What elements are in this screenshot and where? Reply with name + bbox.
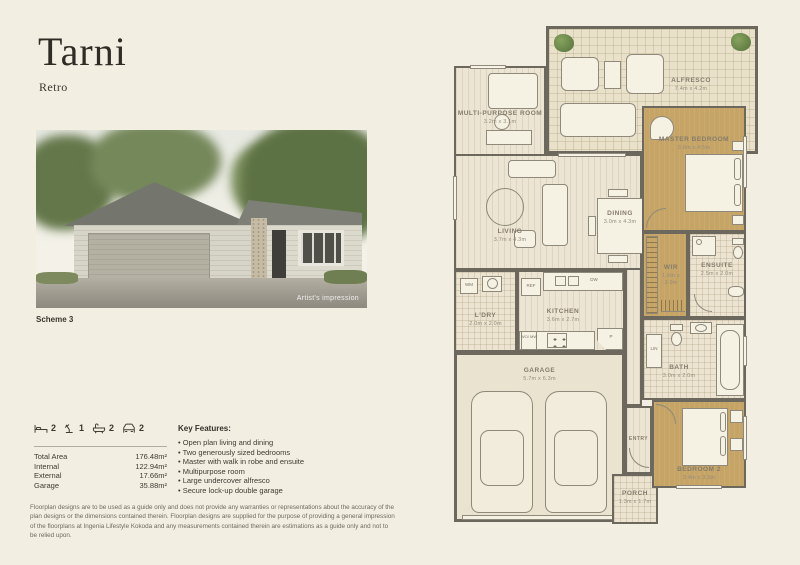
room-label: L'DRY 2.0m x 2.0m [456,312,515,328]
room-name-text: ENTRY [629,436,648,442]
armchair-shape [561,57,599,91]
room-dims-text: 3.0m x 2.0m [646,373,712,380]
sofa-shape [542,184,568,246]
oven-microwave-label: WO/ MW [520,335,538,339]
spec-divider [34,446,167,447]
car-shape [471,391,533,513]
room-label: KITCHEN 3.6m x 2.7m [519,308,607,324]
room-label: WIR 1.6m x 3.0m [656,264,686,287]
room-name-text: BATH [669,364,689,371]
room-name-text: GARAGE [524,367,556,374]
spec-label: Internal [34,462,59,472]
desk-shape [486,130,532,145]
toilet-bowl-shape [671,332,682,346]
sliding-door [558,153,626,157]
room-label: ALFRESCO 7.4m x 4.2m [631,77,751,93]
window [470,65,506,69]
room-laundry: WM L'DRY 2.0m x 2.0m [454,270,517,352]
room-name-text: ENSUITE [701,262,733,269]
car-shape [545,391,607,513]
room-dims-text: 3.0m x 4.3m [602,219,638,226]
floorplan: ALFRESCO 7.4m x 4.2m MULTI-PURPOSE ROOM … [430,18,776,544]
room-label: BEDROOM 2 3.4m x 3.3m [654,466,744,482]
room-kitchen: REF DW KITCHEN 3.6m x 2.7m WO/ MW P [517,270,625,352]
daybed-shape [488,73,538,109]
room-label: ENSUITE 2.5m x 2.0m [690,262,744,278]
tub-basin-shape [487,278,498,289]
room-bedroom2: BEDROOM 2 3.4m x 3.3m [652,400,746,488]
hallway [625,268,642,406]
shower-head-shape [696,239,702,245]
spec-label: External [34,471,62,481]
room-bath: LIN BATH 3.0m x 2.0m [642,318,746,400]
bed-icon [34,423,48,434]
dining-chair-shape [608,255,628,263]
side-table-shape [730,438,743,451]
toilet-bowl-shape [733,246,743,259]
front-window [298,230,344,266]
study-lamp-icon [64,422,76,434]
room-living-dining: LIVING 3.7m x 4.3m DINING 3.0m x 4.3m [454,154,642,270]
basin-shape [695,324,707,332]
grass-left [36,272,78,284]
garage-count: 2 [122,422,144,434]
page-title: Tarni [38,28,127,75]
study-count-value: 1 [79,423,84,433]
bedrooms-count: 2 [34,423,56,434]
room-entry: ENTRY [625,406,652,474]
bathrooms-count: 2 [92,422,114,434]
room-label: ENTRY [627,436,650,442]
dining-chair-shape [608,189,628,197]
room-dims-text: 3.6m x 4.5m [644,145,744,152]
room-name-text: MULTI-PURPOSE ROOM [458,110,542,117]
toilet-tank-shape [670,324,683,331]
room-dims-text: 5.7m x 6.3m [457,376,622,383]
door-arc [646,208,666,228]
room-name-text: MASTER BEDROOM [659,136,729,143]
cooktop-shape [547,333,567,348]
room-label: DINING 3.0m x 4.3m [602,210,638,226]
dishwasher-label: DW [585,278,603,283]
car-roof-shape [554,430,598,486]
spec-row-garage: Garage35.88m² [34,481,167,491]
garage-count-value: 2 [139,423,144,433]
window [743,416,747,460]
room-garage: GARAGE 5.7m x 6.3m [454,352,625,522]
door-arc [694,294,712,312]
bathrooms-count-value: 2 [109,423,114,433]
room-dims-text: 3.2m x 3.1m [456,119,544,126]
coffee-table-shape [604,61,621,89]
linen-label: LIN [646,347,662,352]
grass-right [324,270,367,284]
room-label: MASTER BEDROOM 3.6m x 4.5m [644,136,744,152]
room-dims-text: 3.4m x 3.3m [654,475,744,482]
window [743,136,747,188]
spec-label: Garage [34,481,59,491]
washing-machine-label: WM [460,283,478,288]
feature-item: Secure lock-up double garage [178,486,378,496]
room-label: BATH 3.0m x 2.0m [646,364,712,380]
room-dims-text: 1.6m x 3.0m [656,273,686,287]
dining-table-shape [597,198,643,254]
dining-chair-shape [588,216,596,236]
room-label: GARAGE 5.7m x 6.3m [457,367,622,383]
room-name-text: PORCH [622,490,648,497]
door-arc [629,448,649,468]
feature-item: Open plan living and dining [178,438,378,448]
side-table-shape [732,215,744,225]
room-dims-text: 2.5m x 2.0m [690,271,744,278]
page-subtitle: Retro [39,80,68,95]
pillow-shape [720,412,726,432]
pillow-shape [720,436,726,456]
spec-icon-row: 2 1 2 2 [34,422,144,434]
room-label: PORCH 1.3m x 1.7m [614,490,656,506]
room-master-bedroom: MASTER BEDROOM 3.6m x 4.5m [642,106,746,232]
study-count: 1 [64,422,84,434]
room-multipurpose: MULTI-PURPOSE ROOM 3.2m x 3.1m [454,66,546,156]
car-icon [122,422,136,434]
spec-row-external: External17.66m² [34,471,167,481]
driveway [36,278,367,308]
garage-door-panel [88,233,210,280]
side-table-shape [730,410,743,423]
disclaimer-text: Floorplan designs are to be used as a gu… [30,503,396,541]
stone-pillar [251,218,267,280]
spec-row-internal: Internal122.94m² [34,462,167,472]
key-features: Key Features: Open plan living and dinin… [178,424,378,496]
spec-value: 176.48m² [135,452,167,462]
room-label: MULTI-PURPOSE ROOM 3.2m x 3.1m [456,110,544,126]
feature-item: Large undercover alfresco [178,476,378,486]
room-name-text: DINING [607,210,633,217]
spec-value: 17.66m² [139,471,167,481]
garage-door-line [462,515,617,520]
room-dims-text: 3.6m x 2.7m [519,317,607,324]
window [743,336,747,366]
window [453,176,457,220]
toilet-tank-shape [732,238,744,245]
spec-label: Total Area [34,452,67,462]
house-render-photo: Artist's impression [36,130,367,308]
sink-shape [568,276,579,286]
pillow-shape [734,184,741,206]
bath-icon [92,422,106,434]
basin-shape [728,286,744,297]
feature-item: Multipurpose room [178,467,378,477]
room-dims-text: 7.4m x 4.2m [631,86,751,93]
sofa-shape [508,160,556,178]
spec-table: Total Area176.48m² Internal122.94m² Exte… [34,452,167,490]
room-ensuite: ENSUITE 2.5m x 2.0m [688,232,746,318]
bathtub-shape [716,324,744,396]
room-label: LIVING 3.7m x 4.3m [480,228,540,244]
key-features-list: Open plan living and dining Two generous… [178,438,378,496]
room-name-text: BEDROOM 2 [677,466,721,473]
pantry-label: P [605,335,617,340]
room-dims-text: 2.0m x 2.0m [456,321,515,328]
room-name-text: WIR [664,264,678,271]
feature-item: Master with walk in robe and ensuite [178,457,378,467]
fridge-label: REF [521,284,541,289]
door-arc [656,404,676,424]
car-roof-shape [480,430,524,486]
front-door [272,230,286,280]
room-dims-text: 3.7m x 4.3m [480,237,540,244]
room-name-text: L'DRY [475,312,497,319]
window [676,485,722,489]
room-name-text: LIVING [498,228,523,235]
room-dims-text: 1.3m x 1.7m [614,499,656,506]
bedrooms-count-value: 2 [51,423,56,433]
sink-shape [555,276,566,286]
spec-value: 122.94m² [135,462,167,472]
bathtub-inner-shape [720,330,740,390]
hanging-rail-shape [661,300,685,312]
rug-shape [486,188,524,226]
spec-row-total-area: Total Area176.48m² [34,452,167,462]
feature-item: Two generously sized bedrooms [178,448,378,458]
plant-shape [554,34,574,52]
room-name-text: ALFRESCO [671,77,711,84]
sofa-shape [560,103,636,137]
room-name-text: KITCHEN [547,308,579,315]
shower-shape [692,236,716,256]
scheme-caption: Scheme 3 [36,315,73,324]
pillow-shape [734,158,741,180]
key-features-heading: Key Features: [178,424,378,433]
artist-impression-note: Artist's impression [297,295,359,302]
spec-value: 35.88m² [139,481,167,491]
plant-shape [731,33,751,51]
room-wir: WIR 1.6m x 3.0m [642,232,688,318]
